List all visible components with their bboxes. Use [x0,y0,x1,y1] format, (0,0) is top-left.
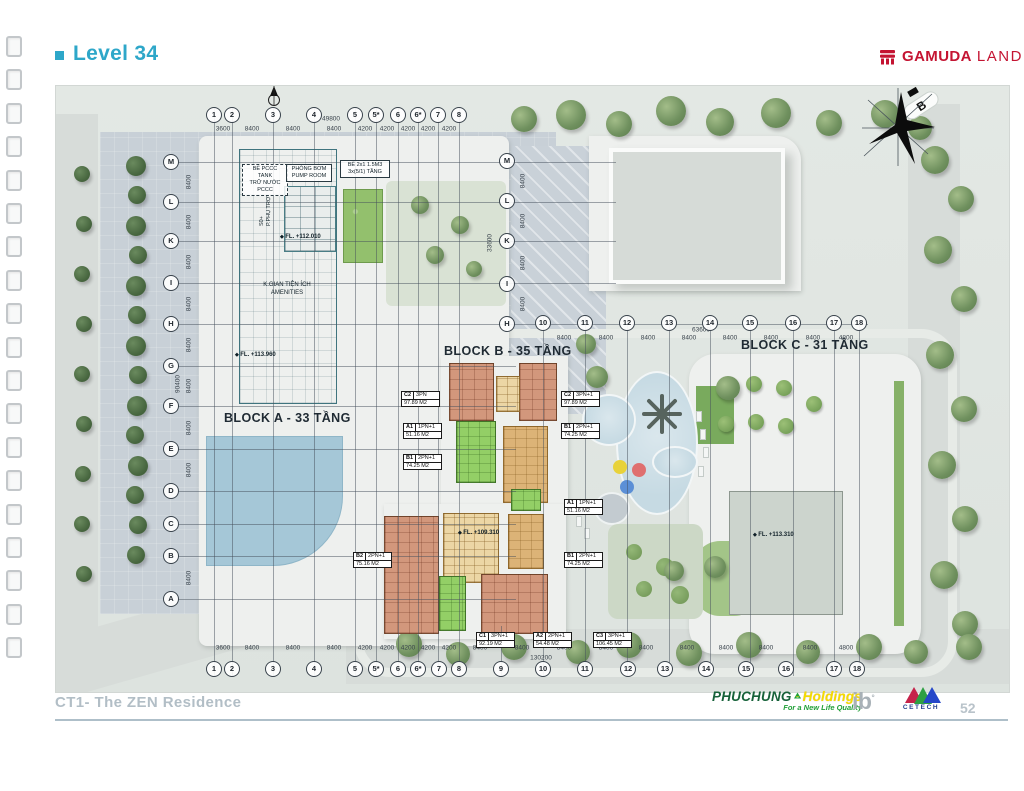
grid-bubble: 17 [826,661,842,677]
dimension-label: 8400 [515,645,529,652]
dimension-label: 8400 [186,175,193,189]
unit-callout: B12PN+174.25 M2 [561,423,600,439]
grid-bubble: H [163,316,179,332]
grid-bubble: I [163,275,179,291]
roof-tree [776,380,792,396]
dimension-label: 8400 [186,463,193,477]
north-arrow: B [856,86,948,174]
footer-rule [55,719,1008,721]
binding-hole [6,36,22,57]
tree [128,306,146,324]
pool-lounger [696,411,702,422]
scanned-plan-page: Level 34 GAMUDA LAND [0,0,1024,791]
dimension-label: 8400 [520,174,527,188]
dimension-label: 8400 [719,645,733,652]
tree [928,451,956,479]
roof-tree [778,418,794,434]
binding-hole [6,337,22,358]
hedge-garden [608,524,703,619]
phuchung-triangle-icon [794,687,801,704]
page-title: Level 34 [55,42,158,66]
unit-callout: B12PN+174.25 M2 [564,552,603,568]
binding-hole [6,570,22,591]
tree [129,516,147,534]
block-c-level: FL. +113.310 [753,532,794,540]
grid-bubble: 15 [738,661,754,677]
tank-schedule-table: BỂ 2x1 1.5M3 3x(5/1) TẦNG [340,160,390,178]
grid-bubble: 5* [368,107,384,123]
unit-callout: C23PN+197.89 M2 [561,391,600,407]
tree [74,516,90,532]
tree [126,216,146,236]
hedge [626,544,642,560]
pool-lounger [700,429,706,440]
grid-bubble: I [499,276,515,292]
dimension-label: 8400 [682,335,696,342]
grid-bubble: 12 [620,661,636,677]
tree [411,196,429,214]
grid-bubble: H [499,316,515,332]
dimension-label: 4200 [358,645,372,652]
grid-bubble: M [499,153,515,169]
tree [75,466,91,482]
splash-pad-yellow [613,460,627,474]
tree [127,396,147,416]
dimension-label: 4200 [380,126,394,133]
dimension-label: 8400 [186,379,193,393]
grid-bubble: 5 [347,107,363,123]
tree [128,456,148,476]
binding-hole [6,303,22,324]
tree [952,506,978,532]
binding-hole [6,537,22,558]
palm-tree-icon [639,391,685,437]
dimension-label: 4200 [380,645,394,652]
grid-bubble: A [163,591,179,607]
dimension-label: 8400 [186,338,193,352]
dimension-label: 8400 [803,645,817,652]
grid-bubble: 10 [535,315,551,331]
dimension-label: 8400 [723,335,737,342]
tree [426,246,444,264]
dimension-label: 8400 [641,335,655,342]
tree [704,556,726,578]
block-b-unit [511,489,541,511]
block-a-level-2: FL. +113.960 [235,352,276,360]
grid-line-vertical [459,108,460,676]
tree [126,486,144,504]
ib-logo: ib° [852,688,874,715]
dimension-label: 4200 [421,126,435,133]
tree [74,366,90,382]
binding-hole [6,504,22,525]
grid-bubble: 13 [661,315,677,331]
grid-line-vertical [585,316,586,676]
grid-bubble: 15 [742,315,758,331]
dimension-label: 3600 [216,126,230,133]
grid-bubble: 3 [265,107,281,123]
tree [576,334,596,354]
block-b-unit [449,363,494,421]
tree [924,236,952,264]
grid-line-horizontal [178,524,516,525]
roof-tree [718,416,734,432]
grid-north-marker [267,86,281,108]
grid-bubble: K [163,233,179,249]
grid-line-horizontal [178,162,616,163]
grid-line-vertical [627,316,628,676]
dimension-label: 8400 [245,645,259,652]
tree [76,566,92,582]
hedge [636,581,652,597]
grid-bubble: C [163,516,179,532]
grid-line-vertical [710,316,711,676]
dimension-label: 33600 [487,234,494,252]
unit-callout: C13PN+192.19 M2 [476,632,515,648]
tree [511,106,537,132]
tree [74,166,90,182]
grid-line-vertical [834,316,835,676]
block-a-label: BLOCK A - 33 TẦNG [224,411,351,425]
dimension-label: 8400 [680,645,694,652]
grid-line-vertical [543,316,544,676]
cetech-logo: CETECH [901,687,941,711]
unit-callout: A22PN+154.48 M2 [533,632,572,648]
tree [76,216,92,232]
block-b-unit [439,576,466,631]
dimension-label: 4800 [839,645,853,652]
dimension-label: 8400 [186,215,193,229]
grid-bubble: M [163,154,179,170]
tree [952,611,978,637]
grid-bubble: 9 [493,661,509,677]
binding-hole [6,403,22,424]
block-c-label: BLOCK C - 31 TẦNG [741,338,869,352]
pool-lounger [576,516,582,527]
dimension-label: 8400 [186,297,193,311]
grid-bubble: 18 [851,315,867,331]
site-plan: BLOCK A - 33 TẦNG BLOCK B - 35 TẦNG BLOC… [55,85,1010,693]
unit-callout: B12PN+174.25 M2 [403,454,442,470]
project-title: CT1- The ZEN Residence [55,694,241,711]
grid-bubble: 17 [826,315,842,331]
phuchung-logo: PHUCHUNG Holdings For a New Life Quality [712,687,862,712]
dimension-label: 4200 [401,645,415,652]
binding-hole [6,136,22,157]
grid-bubble: 6 [390,107,406,123]
grid-line-horizontal [178,491,516,492]
grid-line-vertical [376,108,377,676]
tree [956,634,982,660]
dimension-label: 8400 [639,645,653,652]
left-street [56,114,98,664]
dimension-label: 4200 [421,645,435,652]
dimension-label: 4200 [442,126,456,133]
binding-hole [6,103,22,124]
grid-bubble: 7 [430,107,446,123]
grid-bubble: 5* [368,661,384,677]
grid-line-vertical [232,108,233,676]
cetech-triangles-icon [905,687,941,704]
tree [816,110,842,136]
grid-bubble: 8 [451,661,467,677]
dimension-label: 8400 [186,255,193,269]
dimension-label: 8400 [186,571,193,585]
dimension-label: 8400 [557,335,571,342]
binding-hole [6,637,22,658]
grid-bubble: L [499,193,515,209]
dimension-label: 8400 [186,421,193,435]
dimension-label: 8400 [520,297,527,311]
grid-line-horizontal [178,599,516,600]
tree [126,156,146,176]
block-c-roof [729,491,843,615]
grid-bubble: 16 [778,661,794,677]
phuchung-tagline: For a New Life Quality [712,703,862,712]
binding-hole [6,437,22,458]
grid-bubble: 6* [410,107,426,123]
gamuda-mark-icon [878,49,897,65]
grid-bubble: 18 [849,661,865,677]
grid-bubble: 4 [306,107,322,123]
grid-bubble: 4 [306,661,322,677]
grid-bubble: 7 [431,661,447,677]
tree [586,366,608,388]
dimension-label: 8400 [520,256,527,270]
tree [451,216,469,234]
dimension-label: 8400 [520,214,527,228]
grid-bubble: B [163,548,179,564]
grid-bubble: 6 [390,661,406,677]
binding-hole [6,604,22,625]
pool-lounger [703,447,709,458]
block-b-unit [456,421,496,483]
splash-pad-red [632,463,646,477]
grid-bubble: K [499,233,515,249]
dimension-label: 3600 [216,645,230,652]
pump-room-note: PHÒNG BƠM PUMP ROOM [286,164,332,182]
tree [948,186,974,212]
northeast-building-roof [609,148,785,284]
grid-bubble: 2 [224,661,240,677]
grid-line-horizontal [178,449,516,450]
block-b-label: BLOCK B - 35 TẦNG [444,344,572,358]
aux-room-note: S0+ P.PHỤ TRỢ [259,196,273,226]
dimension-label: 90400 [175,375,182,393]
pool-lounger [698,466,704,477]
dimension-label: 4200 [358,126,372,133]
dimension-label: 49800 [322,116,340,123]
grid-bubble: E [163,441,179,457]
dimension-label: 8400 [286,645,300,652]
tree [556,100,586,130]
block-a-core [284,186,336,252]
grid-line-horizontal [178,366,516,367]
grid-line-vertical [750,316,751,676]
brand-gamuda: GAMUDA [902,48,972,65]
unit-callout: B22PN+175.16 M2 [353,552,392,568]
page-number: 52 [960,700,976,716]
tree [126,276,146,296]
grid-bubble: 2 [224,107,240,123]
tree [606,111,632,137]
grid-bubble: 8 [451,107,467,123]
gamuda-land-logo: GAMUDA LAND [878,48,1023,65]
unit-callout: A11PN+151.16 M2 [564,499,603,515]
grid-bubble: L [163,194,179,210]
pool-side [652,446,698,478]
roof-tree [746,376,762,392]
tree [129,366,147,384]
tree [127,546,145,564]
dimension-label: 8400 [599,335,613,342]
block-a-green-court [343,189,383,263]
page-title-text: Level 34 [73,42,158,66]
grid-bubble: 16 [785,315,801,331]
grid-bubble: 14 [698,661,714,677]
grid-bubble: 11 [577,661,593,677]
dimension-label: 8400 [327,126,341,133]
block-a-level-1: FL. +112.010 [280,234,321,242]
tree [706,108,734,136]
binding-hole [6,69,22,90]
binding-hole [6,203,22,224]
grid-bubble: 3 [265,661,281,677]
dimension-label: 4200 [442,645,456,652]
block-b-level: FL. +109.310 [458,530,499,538]
grid-bubble: 6* [410,661,426,677]
grid-bubble: 12 [619,315,635,331]
grid-bubble: D [163,483,179,499]
binding-hole [6,236,22,257]
roof-tree [806,396,822,412]
grid-line-vertical [669,316,670,676]
block-b-unit [519,363,557,421]
grid-bubble: 10 [535,661,551,677]
tree [74,266,90,282]
block-b-unit [481,574,548,634]
phuchung-name: PHUCHUNG [712,689,792,704]
grid-line-horizontal [178,283,616,284]
tree [76,316,92,332]
dimension-label: 8400 [286,126,300,133]
grid-bubble: 5 [347,661,363,677]
grid-line-horizontal [178,202,616,203]
tree [951,396,977,422]
unit-callout: C33PN+1106.45 M2 [593,632,632,648]
tree [129,246,147,264]
unit-callout: A11PN+151.16 M2 [403,423,442,439]
cetech-name: CETECH [901,704,941,711]
grid-bubble: 1 [206,661,222,677]
grid-bubble: 13 [657,661,673,677]
unit-callout: C23PN97.89 M2 [401,391,440,407]
grid-line-horizontal [178,241,616,242]
block-b-unit [384,516,439,634]
tree [126,426,144,444]
binding-hole [6,470,22,491]
grid-line-vertical [314,108,315,676]
binding-hole [6,170,22,191]
dimension-label: 4200 [401,126,415,133]
title-bullet-icon [55,51,64,60]
grid-bubble: G [163,358,179,374]
grid-bubble: 14 [702,315,718,331]
brand-land: LAND [977,48,1023,65]
binding-hole [6,270,22,291]
grid-line-vertical [793,316,794,676]
tree [76,416,92,432]
tree [126,336,146,356]
tree [716,376,740,400]
grid-bubble: 11 [577,315,593,331]
tree [128,186,146,204]
tree [664,561,684,581]
tree [761,98,791,128]
grid-line-vertical [214,108,215,676]
grid-line-vertical [398,108,399,676]
fire-tank-note: BỂ PCCC TANK TRỮ NƯỚC PCCC [242,164,288,196]
grid-line-horizontal [178,324,868,325]
grid-line-horizontal [178,556,516,557]
grid-line-vertical [355,108,356,676]
grid-bubble: 1 [206,107,222,123]
tree [656,96,686,126]
dimension-label: 8400 [327,645,341,652]
block-b-unit [508,514,544,569]
tree [951,286,977,312]
tree [930,561,958,589]
dimension-label: 8400 [759,645,773,652]
block-c-green-strip [894,381,904,626]
grid-line-horizontal [178,406,516,407]
binding-hole [6,370,22,391]
tree [904,640,928,664]
tree [926,341,954,369]
grid-line-vertical [859,316,860,676]
grid-bubble: F [163,398,179,414]
tree [466,261,482,277]
hedge [671,586,689,604]
dimension-label: 8400 [245,126,259,133]
amenities-note: K.GIAN TIỆN ÍCH AMENITIES [252,282,322,297]
